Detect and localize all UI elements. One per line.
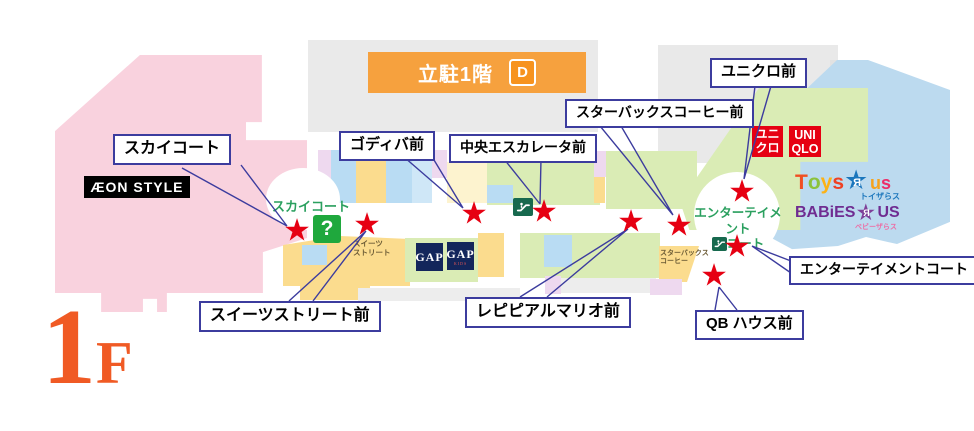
location-star: ★ — [700, 260, 728, 291]
callout-repipi-armario: レピピアルマリオ前 — [465, 297, 631, 328]
callout-uniqlo: ユニクロ前 — [710, 58, 807, 88]
callout-godiva: ゴディバ前 — [339, 131, 435, 161]
callout-sweets-street: スイーツストリート前 — [199, 301, 381, 332]
aeon-style-logo: ÆON STYLE — [84, 176, 190, 198]
babiesrus-star-r-icon: ★ Я — [855, 201, 877, 224]
callout-sky-court: スカイコート — [113, 134, 231, 165]
store-block — [594, 177, 605, 203]
store-block — [520, 233, 660, 278]
gap-logo: GAP — [416, 243, 443, 271]
babiesrus-jp-label: ベビーザらス — [855, 222, 897, 232]
babiesrus-logo: BABiES ★ Я US — [795, 201, 900, 224]
store-block — [561, 278, 656, 293]
store-block — [487, 185, 513, 203]
callout-entertainment-court: エンターテイメントコート — [789, 256, 974, 285]
location-star: ★ — [530, 196, 558, 227]
parking-banner: 立駐1階 D — [368, 52, 586, 93]
location-star: ★ — [460, 198, 488, 229]
callout-central-escalator: 中央エスカレータ前 — [449, 134, 597, 163]
store-block — [302, 245, 327, 265]
location-star: ★ — [665, 210, 693, 241]
store-block — [545, 276, 561, 294]
store-block — [283, 245, 300, 277]
floor-label: 1F — [42, 302, 133, 394]
store-block — [650, 279, 682, 295]
uniqlo-en-logo: UNI QLO — [789, 126, 821, 157]
location-star: ★ — [353, 209, 381, 240]
location-star: ★ — [283, 215, 311, 246]
callout-starbucks: スターバックスコーヒー前 — [565, 99, 754, 128]
store-block — [606, 151, 697, 209]
uniqlo-jp-logo: ユニ クロ — [752, 126, 783, 157]
sweets-street-label: スイーツ ストリート — [353, 239, 391, 257]
information-icon: ? — [313, 215, 341, 243]
location-star: ★ — [617, 206, 645, 237]
store-block — [544, 235, 572, 267]
store-block — [478, 233, 504, 277]
parking-label: 立駐1階 — [418, 58, 493, 87]
location-star: ★ — [728, 176, 756, 207]
floor-map-1f: 立駐1階 D ÆON STYLE スカイコート ? スイーツ ストリート スター… — [0, 0, 974, 431]
parking-zone-badge: D — [509, 59, 536, 86]
gap-kids-logo: GAP KIDS — [447, 242, 474, 270]
callout-qb-house: QB ハウス前 — [695, 310, 804, 340]
store-block — [412, 158, 432, 203]
